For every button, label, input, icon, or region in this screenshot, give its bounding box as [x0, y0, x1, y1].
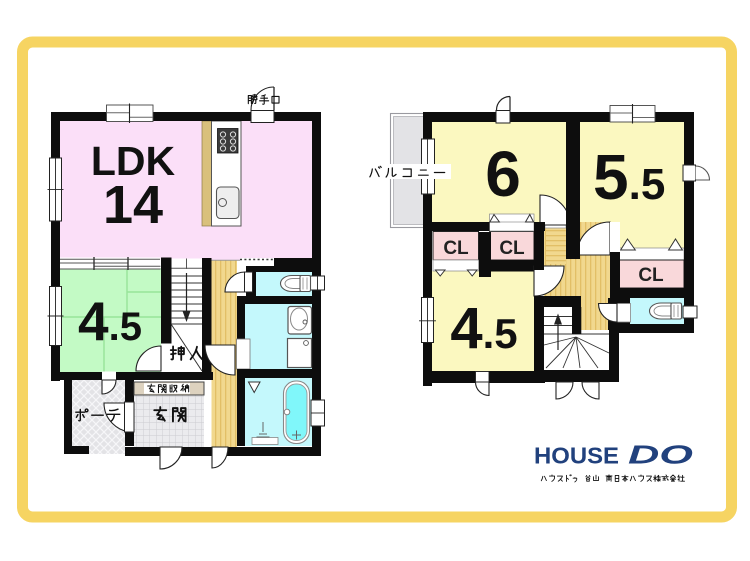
svg-text:CL: CL — [499, 238, 525, 259]
svg-text:CL: CL — [443, 238, 469, 259]
svg-text:DO: DO — [628, 440, 693, 470]
svg-text:HOUSE: HOUSE — [534, 443, 619, 469]
svg-text:CL: CL — [638, 265, 664, 286]
svg-text:6: 6 — [485, 138, 521, 210]
svg-text:14: 14 — [103, 175, 163, 235]
